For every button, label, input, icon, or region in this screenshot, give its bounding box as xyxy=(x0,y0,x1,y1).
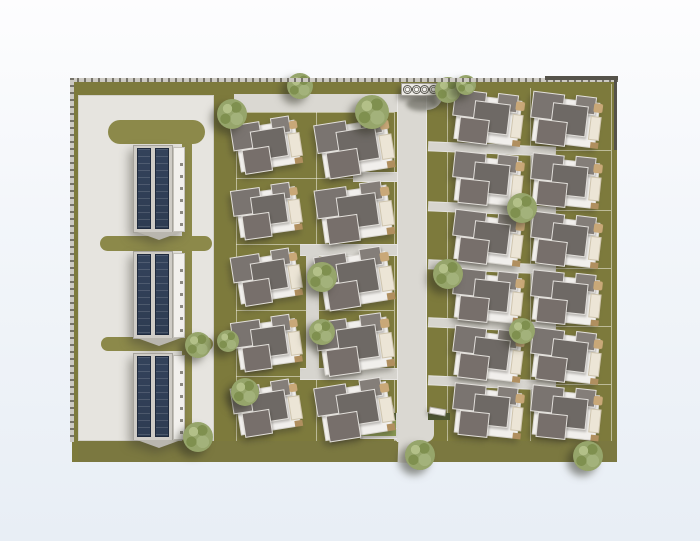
tree xyxy=(509,318,535,344)
lot-line xyxy=(611,84,612,441)
boundary-fence-left xyxy=(70,78,74,442)
pergola xyxy=(590,142,598,149)
pergola xyxy=(593,223,603,233)
entrance-porch xyxy=(510,407,524,432)
pergola xyxy=(593,103,603,113)
pergola xyxy=(288,383,297,393)
pergola xyxy=(515,394,524,404)
roof-panel xyxy=(535,239,567,268)
pergola xyxy=(288,120,297,130)
entrance-porch xyxy=(588,177,602,202)
roof-panel xyxy=(325,411,361,443)
entrance-porch xyxy=(587,352,602,377)
roof-panel xyxy=(536,297,568,325)
house xyxy=(310,372,403,448)
pergola xyxy=(590,378,598,385)
boundary-fence-top xyxy=(70,78,618,82)
entrance-porch xyxy=(510,292,524,317)
tree xyxy=(433,259,463,289)
entrance-porch xyxy=(288,199,302,224)
pergola xyxy=(590,435,598,442)
pergola xyxy=(590,262,598,269)
roof-panel xyxy=(325,214,360,245)
house xyxy=(227,177,308,245)
roof-panel xyxy=(325,148,361,180)
entrance-porch xyxy=(588,294,602,319)
house xyxy=(525,86,610,155)
roof-panel xyxy=(535,355,567,384)
tree xyxy=(573,441,603,471)
pergola xyxy=(590,320,598,327)
house xyxy=(447,378,531,446)
pergola xyxy=(379,251,390,262)
entrance-porch xyxy=(588,409,602,434)
roof-panel xyxy=(241,146,273,174)
tree xyxy=(217,330,239,352)
roof-panel xyxy=(457,117,489,146)
entrance-porch xyxy=(288,331,302,356)
solar-panel-array xyxy=(155,356,169,437)
roof-panel xyxy=(458,295,490,323)
pergola xyxy=(379,186,389,197)
pergola xyxy=(512,260,520,267)
solar-panel-array xyxy=(137,148,151,229)
pergola xyxy=(379,318,389,329)
roof-panel xyxy=(241,212,272,240)
building-wing xyxy=(173,355,185,440)
pergola xyxy=(593,164,602,174)
entrance-porch xyxy=(587,116,602,141)
house xyxy=(227,243,309,312)
entrance-porch xyxy=(379,200,395,227)
entrance-porch xyxy=(509,234,524,259)
pergola xyxy=(289,186,298,196)
pergola xyxy=(295,289,303,296)
tree xyxy=(405,440,435,470)
site-plan-render xyxy=(0,0,700,541)
roof-panel xyxy=(457,353,489,382)
apartment-building xyxy=(133,251,185,339)
roof-panel xyxy=(458,410,490,438)
tree xyxy=(287,73,313,99)
tree xyxy=(217,99,247,129)
roof-panel xyxy=(241,278,273,306)
roof-panel xyxy=(536,412,568,440)
pergola xyxy=(295,420,303,427)
roof-panel xyxy=(458,178,490,206)
pergola xyxy=(593,281,602,291)
tree xyxy=(183,422,213,452)
roof-panel xyxy=(241,409,273,437)
house xyxy=(310,175,402,250)
house xyxy=(525,148,609,216)
solar-panel-array xyxy=(155,148,169,229)
entrance-porch xyxy=(379,133,395,160)
building-wing xyxy=(173,253,185,338)
entrance-porch xyxy=(288,132,303,157)
entrance-porch xyxy=(288,395,303,420)
water-tank xyxy=(412,85,421,94)
entrance-porch xyxy=(379,332,395,359)
boundary-wall-top-right xyxy=(545,76,618,80)
entrance-porch xyxy=(288,264,303,289)
roof-panel xyxy=(536,180,568,208)
tree xyxy=(307,262,337,292)
roof-panel xyxy=(241,344,272,372)
solar-panel-array xyxy=(137,356,151,437)
tree xyxy=(309,319,335,345)
entrance-porch xyxy=(379,396,395,423)
roof-panel xyxy=(457,237,489,266)
pergola xyxy=(288,252,297,262)
pergola xyxy=(515,279,524,289)
pergola xyxy=(386,423,395,431)
pergola xyxy=(289,318,298,328)
tree xyxy=(185,332,211,358)
pergola xyxy=(593,339,603,349)
house xyxy=(227,309,308,377)
house xyxy=(525,380,609,448)
pergola xyxy=(295,356,303,363)
pergola xyxy=(593,396,602,406)
apartment-building xyxy=(133,353,185,441)
pergola xyxy=(386,160,395,168)
entrance-porch xyxy=(509,114,524,139)
pergola xyxy=(515,162,524,172)
pergola xyxy=(295,224,303,231)
main-road xyxy=(397,94,427,442)
water-tank xyxy=(403,85,412,94)
tree xyxy=(507,193,537,223)
apartment-building xyxy=(133,145,185,233)
solar-panel-array xyxy=(155,254,169,335)
building-wing xyxy=(173,147,185,232)
entrance-porch xyxy=(587,236,602,261)
shadow-blob xyxy=(406,97,438,111)
pergola xyxy=(386,359,395,366)
pergola xyxy=(512,140,520,147)
pergola xyxy=(386,227,395,234)
house xyxy=(310,109,403,185)
boundary-wall-right xyxy=(614,80,617,150)
pergola xyxy=(386,292,395,300)
entrance-porch xyxy=(379,265,395,292)
entrance-porch xyxy=(509,350,524,375)
solar-panel-array xyxy=(137,254,151,335)
tree xyxy=(355,95,389,129)
pergola xyxy=(379,382,390,393)
pergola xyxy=(590,203,598,210)
pergola xyxy=(512,376,520,383)
pergola xyxy=(295,157,303,164)
pergola xyxy=(512,433,520,440)
water-tanks xyxy=(401,82,439,98)
tree xyxy=(231,378,259,406)
roof-panel xyxy=(325,346,360,377)
pergola xyxy=(515,101,525,111)
roof-panel xyxy=(535,119,567,148)
